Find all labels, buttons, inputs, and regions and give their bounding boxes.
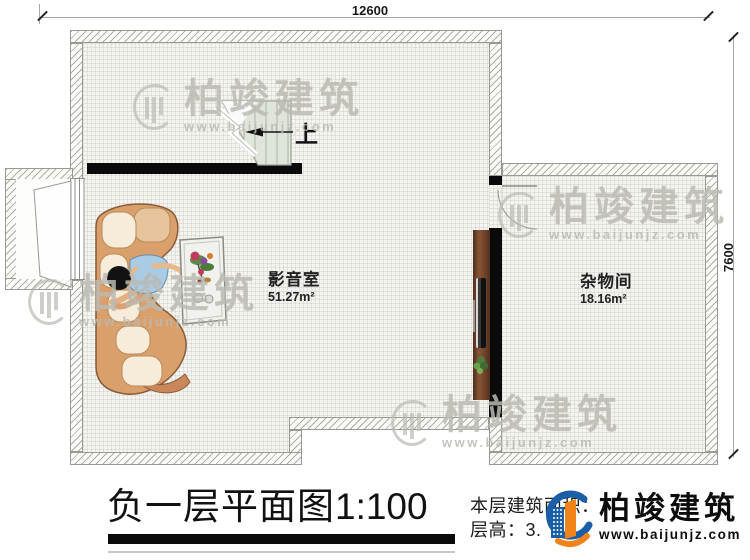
plan-title-row: 负一层平面图1:100 xyxy=(107,476,428,530)
plant-icon xyxy=(471,352,491,380)
brand-url: www.baijunjz.com xyxy=(599,527,741,542)
info-height-text: 层高：3. xyxy=(470,516,542,542)
room-label-media: 影音室 51.27m² xyxy=(268,271,321,304)
title-underline xyxy=(108,534,455,544)
brand-logo-icon xyxy=(538,489,594,549)
wall-bottom-left xyxy=(70,452,302,465)
brand-logo: 柏竣建筑 www.baijunjz.com xyxy=(538,489,741,549)
floor-plan-canvas: 12600 7600 xyxy=(0,0,750,560)
wall-step-right xyxy=(489,417,502,452)
wall-top xyxy=(70,30,502,43)
title-underline-thin xyxy=(108,551,455,553)
plan-title: 负一层平面图 xyxy=(107,486,335,527)
tv xyxy=(476,278,486,348)
floor-media-room xyxy=(83,417,289,452)
wall-notch-vertical xyxy=(489,43,502,176)
dimension-tick xyxy=(703,11,714,22)
dimension-label-top: 12600 xyxy=(320,3,420,18)
wall-left-upper xyxy=(70,43,83,180)
window-sash-outline xyxy=(0,168,86,292)
wall-bottom-right xyxy=(489,452,718,465)
wall-bottom-middle xyxy=(289,417,489,430)
dimension-extension-line xyxy=(39,4,40,24)
room-label-storage: 杂物间 18.16m² xyxy=(580,273,633,306)
plan-scale: 1:100 xyxy=(335,486,428,527)
wall-divider xyxy=(489,228,502,417)
wall-right xyxy=(705,176,718,452)
brand-name: 柏竣建筑 xyxy=(599,493,741,524)
dimension-label-right: 7600 xyxy=(721,243,736,272)
dish-icon xyxy=(194,294,203,303)
stair-direction-label: 上 xyxy=(295,115,318,149)
wall-left-lower xyxy=(70,280,83,452)
tv-stand xyxy=(473,300,475,332)
coffee-table-illustration xyxy=(174,234,230,330)
dish-icon xyxy=(205,295,213,303)
door-swing xyxy=(480,160,560,240)
